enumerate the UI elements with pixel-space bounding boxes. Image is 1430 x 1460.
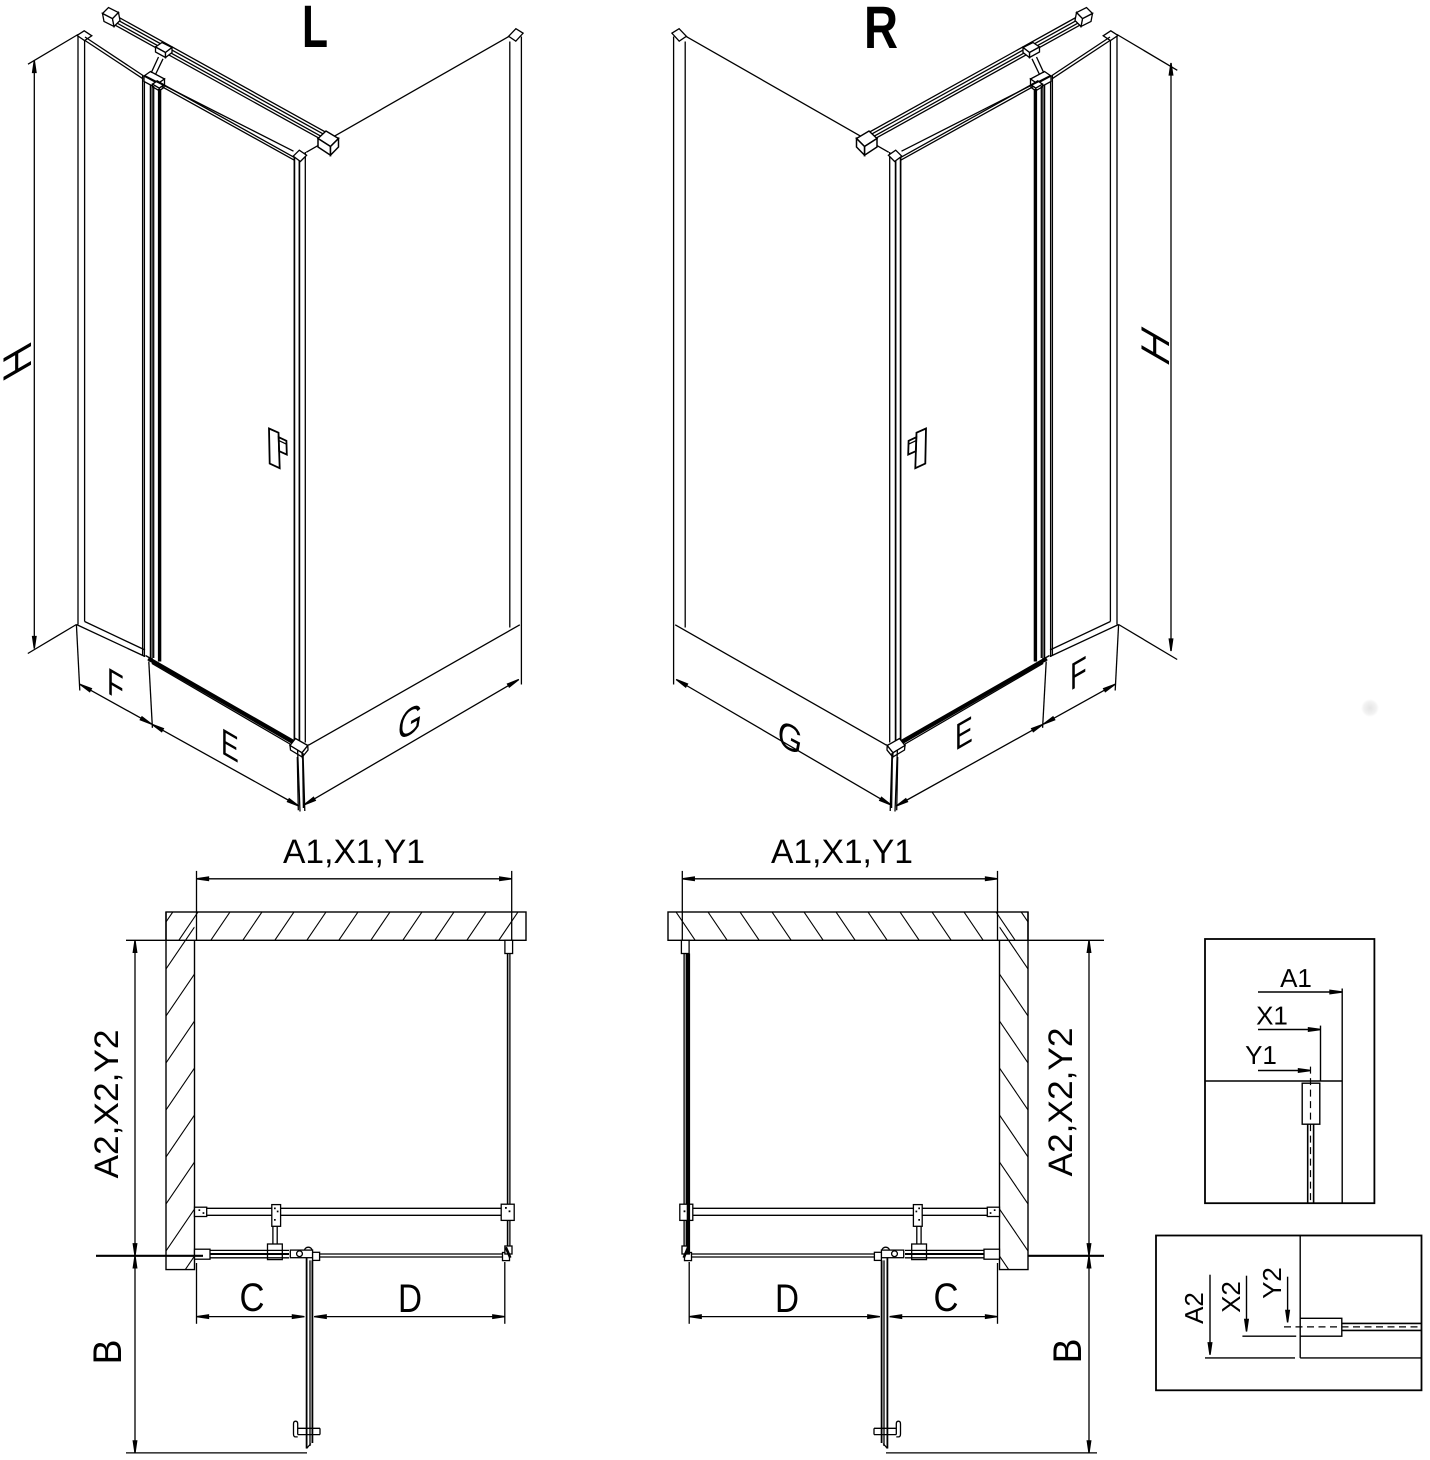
- svg-text:Y1: Y1: [1245, 1040, 1277, 1070]
- svg-text:B: B: [1046, 1339, 1090, 1364]
- svg-text:Y2: Y2: [1257, 1267, 1287, 1299]
- svg-text:C: C: [934, 1276, 959, 1320]
- svg-text:A1: A1: [1280, 963, 1312, 993]
- svg-text:D: D: [398, 1277, 422, 1321]
- svg-text:B: B: [86, 1340, 130, 1365]
- svg-text:X1: X1: [1256, 1001, 1288, 1031]
- svg-text:D: D: [775, 1277, 799, 1321]
- svg-text:X2: X2: [1216, 1281, 1246, 1313]
- svg-text:A1,X1,Y1: A1,X1,Y1: [283, 833, 425, 871]
- svg-text:R: R: [864, 0, 898, 61]
- svg-text:A2,X2,Y2: A2,X2,Y2: [1042, 1028, 1080, 1177]
- svg-text:C: C: [240, 1276, 265, 1320]
- svg-text:A2: A2: [1179, 1292, 1209, 1324]
- svg-text:A2,X2,Y2: A2,X2,Y2: [88, 1030, 126, 1179]
- svg-text:A1,X1,Y1: A1,X1,Y1: [771, 833, 913, 871]
- svg-text:L: L: [302, 0, 328, 60]
